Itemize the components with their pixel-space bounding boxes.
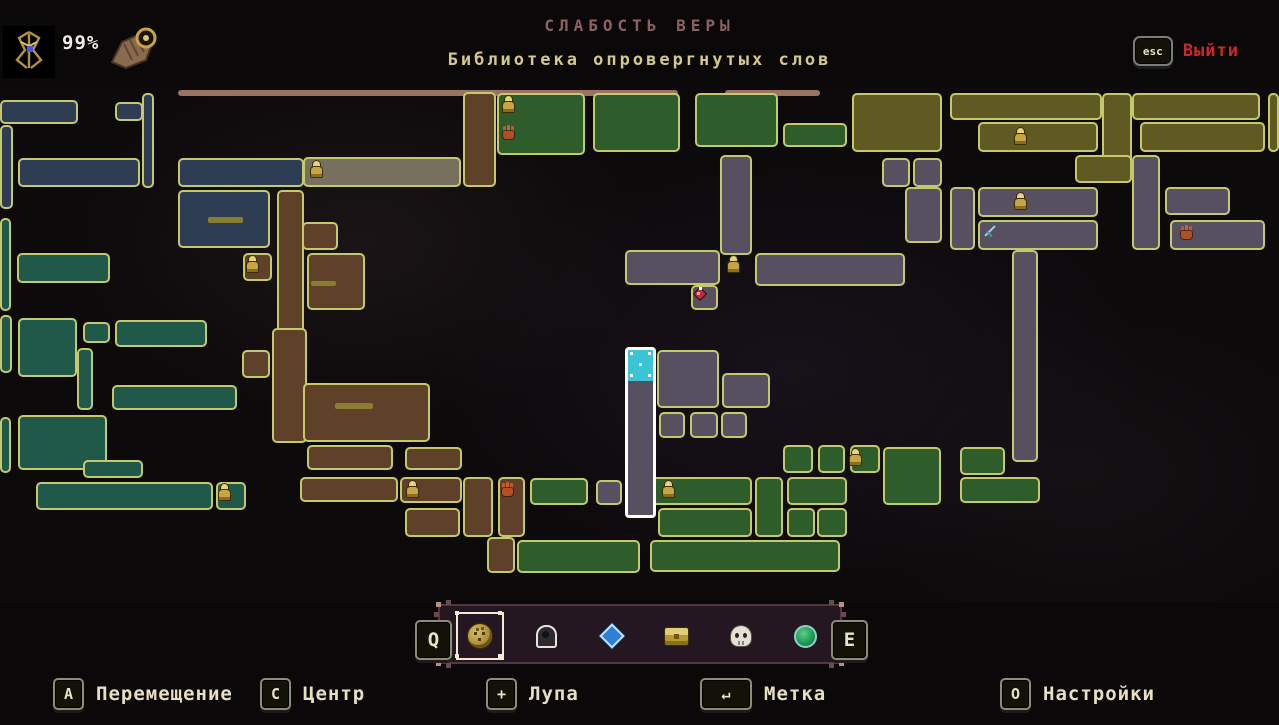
map-room xyxy=(242,350,270,378)
hint-лупа[interactable]: +Лупа xyxy=(486,678,579,710)
map-room xyxy=(112,385,237,410)
room-detail xyxy=(311,281,336,286)
teleport-sparkle xyxy=(639,363,642,366)
map-room xyxy=(77,348,93,410)
map-room xyxy=(950,187,975,250)
tab-chest-marker[interactable] xyxy=(654,614,698,658)
map-screen: 99% СЛАБОСТЬ ВЕРЫ Библиотека опровергнут… xyxy=(0,0,1279,725)
map-room xyxy=(818,445,845,473)
orb-marker-icon xyxy=(794,625,817,648)
hint-перемещение[interactable]: AПеремещение xyxy=(53,678,233,710)
map-room xyxy=(1132,155,1160,250)
map-room xyxy=(463,477,493,537)
map-room xyxy=(115,320,207,347)
tab-diamond-marker[interactable] xyxy=(590,614,634,658)
prie-dieu-checkpoint-icon xyxy=(502,96,515,113)
map-room xyxy=(307,445,393,470)
map-room xyxy=(300,477,398,502)
map-room xyxy=(913,158,942,187)
gem-icon xyxy=(694,287,707,303)
map-room xyxy=(463,92,496,187)
map-room xyxy=(277,190,304,340)
map-room xyxy=(657,350,719,408)
map-room xyxy=(36,482,213,510)
map-room xyxy=(1075,155,1132,183)
map-room xyxy=(115,102,143,121)
map-room xyxy=(302,222,338,250)
map-room xyxy=(303,383,430,442)
map-room xyxy=(658,508,752,537)
hint-метка[interactable]: ↵Метка xyxy=(700,678,826,710)
map-room xyxy=(695,93,778,147)
chest-marker-icon xyxy=(665,628,688,645)
tab-hooded-figure-marker[interactable] xyxy=(525,614,569,658)
map-room xyxy=(405,447,462,470)
map-room xyxy=(178,158,304,187)
sword-icon xyxy=(982,224,998,240)
prie-dieu-checkpoint-icon xyxy=(406,481,419,498)
hint-label: Настройки xyxy=(1043,683,1155,705)
hint-key[interactable]: ↵ xyxy=(700,678,752,710)
map-room xyxy=(722,373,770,408)
next-category-key[interactable]: E xyxy=(831,620,868,660)
map-room xyxy=(593,93,680,152)
prie-dieu-checkpoint-icon xyxy=(662,481,675,498)
zone-subtitle: Библиотека опровергнутых слов xyxy=(0,50,1279,70)
map-room xyxy=(960,477,1040,503)
map-room xyxy=(303,157,461,187)
map-room xyxy=(0,125,13,209)
map-room xyxy=(755,477,783,537)
teleport-sparkle xyxy=(648,374,651,377)
hint-настройки[interactable]: OНастройки xyxy=(1000,678,1155,710)
hint-label: Метка xyxy=(764,683,826,705)
current-player-room xyxy=(625,347,656,518)
control-hints: AПеремещениеCЦентр+Лупа↵МеткаOНастройки xyxy=(0,672,1279,718)
skull-marker-icon xyxy=(731,626,751,646)
hand-icon xyxy=(1180,226,1194,240)
hint-label: Центр xyxy=(303,683,365,705)
map-room xyxy=(755,253,905,286)
map-room xyxy=(883,447,941,505)
map-room xyxy=(650,540,840,572)
map-room xyxy=(530,478,588,505)
map-room xyxy=(882,158,910,187)
map-room xyxy=(950,93,1102,120)
hint-центр[interactable]: CЦентр xyxy=(260,678,365,710)
map-room xyxy=(1140,122,1265,152)
room-detail xyxy=(335,403,373,409)
map-room xyxy=(1132,93,1260,120)
prie-dieu-checkpoint-icon xyxy=(310,161,323,178)
exit-label: Выйти xyxy=(1183,41,1239,61)
map-room xyxy=(18,158,140,187)
map-room xyxy=(978,122,1098,152)
map-room xyxy=(817,508,847,537)
map-room xyxy=(721,412,747,438)
prie-dieu-checkpoint-icon xyxy=(1014,128,1027,145)
prie-dieu-checkpoint-icon xyxy=(218,484,231,501)
map-room xyxy=(18,318,77,377)
map-room xyxy=(905,187,942,243)
esc-key[interactable]: esc xyxy=(1133,36,1173,66)
hand-icon xyxy=(502,126,516,140)
map-room xyxy=(17,253,110,283)
hint-key[interactable]: + xyxy=(486,678,517,710)
coin-marker-icon xyxy=(468,624,492,648)
exit-button[interactable]: esc Выйти xyxy=(1133,36,1239,66)
teleport-sparkle xyxy=(648,352,651,355)
map-room xyxy=(659,412,685,438)
map-room xyxy=(517,540,640,573)
map-room xyxy=(0,218,11,311)
header: 99% СЛАБОСТЬ ВЕРЫ Библиотека опровергнут… xyxy=(0,0,1279,90)
prev-category-key[interactable]: Q xyxy=(415,620,452,660)
prie-dieu-checkpoint-icon xyxy=(849,449,862,466)
map-room xyxy=(690,412,718,438)
map-room xyxy=(0,315,12,373)
map-room xyxy=(720,155,752,255)
map-room xyxy=(1268,93,1279,152)
hint-label: Лупа xyxy=(529,683,579,705)
prie-dieu-checkpoint-icon xyxy=(1014,193,1027,210)
zone-title: СЛАБОСТЬ ВЕРЫ xyxy=(0,16,1279,35)
map-room xyxy=(960,447,1005,475)
map-room xyxy=(978,187,1098,217)
tab-skull-marker[interactable] xyxy=(719,614,763,658)
hint-key[interactable]: O xyxy=(1000,678,1031,710)
map-room xyxy=(1165,187,1230,215)
marker-tabs xyxy=(450,612,834,660)
hooded-figure-marker-icon xyxy=(536,625,557,648)
map-room xyxy=(783,123,847,147)
tab-coin-marker[interactable] xyxy=(456,612,504,660)
map-room xyxy=(596,480,622,505)
map-room xyxy=(83,322,110,343)
diamond-marker-icon xyxy=(599,623,624,648)
world-map[interactable] xyxy=(0,88,1279,602)
teleport-marker xyxy=(628,350,653,381)
room-detail xyxy=(208,217,243,223)
map-room xyxy=(625,250,720,285)
prie-dieu-checkpoint-icon xyxy=(727,256,740,273)
teleport-sparkle xyxy=(630,352,633,355)
map-room xyxy=(852,93,942,152)
map-room xyxy=(783,445,813,473)
marker-legend-panel xyxy=(438,604,842,664)
hint-key[interactable]: A xyxy=(53,678,84,710)
teleport-sparkle xyxy=(630,374,633,377)
map-room xyxy=(142,93,154,188)
hand-icon xyxy=(501,483,515,497)
map-room xyxy=(0,100,78,124)
map-room xyxy=(83,460,143,478)
map-room xyxy=(487,537,515,573)
hint-key[interactable]: C xyxy=(260,678,291,710)
tab-orb-marker[interactable] xyxy=(784,614,828,658)
map-room xyxy=(787,508,815,537)
map-room xyxy=(1012,250,1038,462)
map-room xyxy=(405,508,460,537)
map-room xyxy=(272,328,307,443)
hint-label: Перемещение xyxy=(96,683,233,705)
prie-dieu-checkpoint-icon xyxy=(246,256,259,273)
map-room xyxy=(787,477,847,505)
map-room xyxy=(0,417,11,473)
